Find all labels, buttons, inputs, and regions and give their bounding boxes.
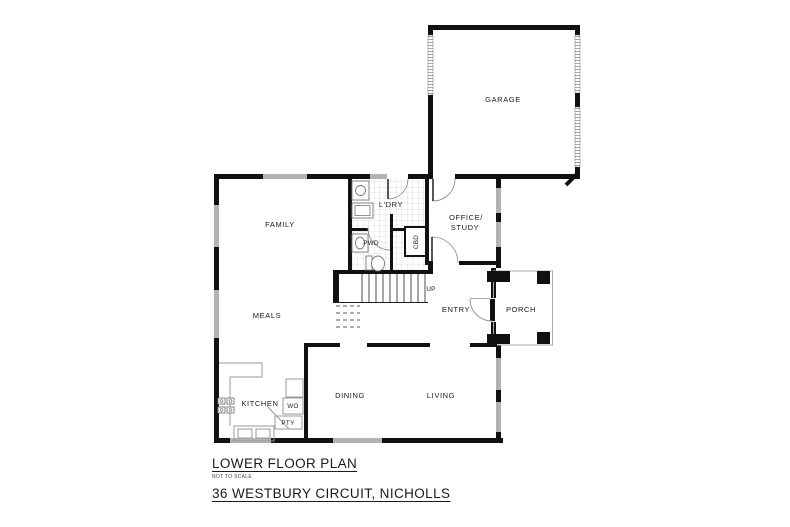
address-title: 36 WESTBURY CIRCUIT, NICHOLLS bbox=[212, 486, 450, 501]
garage-right-hatched-wall-lower bbox=[575, 107, 580, 167]
porch-post-top-right bbox=[537, 271, 550, 284]
garage-top-wall bbox=[428, 25, 580, 30]
kitchen-label: KITCHEN bbox=[241, 399, 278, 408]
office-right-wall-segment bbox=[496, 179, 501, 188]
laundry-powder-block bbox=[333, 179, 432, 274]
family-top-window bbox=[263, 174, 307, 179]
family-label: FAMILY bbox=[265, 220, 295, 229]
garage-left-wall-top bbox=[428, 25, 433, 35]
interior-walls-south bbox=[304, 343, 497, 443]
kitchen-sink-bowl-right bbox=[256, 429, 270, 438]
front-door-arc bbox=[470, 299, 492, 321]
laundry-label: L'DRY bbox=[379, 200, 403, 209]
entry-label: ENTRY bbox=[442, 305, 470, 314]
wall-oven-label: WO bbox=[287, 403, 298, 410]
front-door-leaf bbox=[490, 299, 495, 321]
garage-right-wall-mid bbox=[575, 93, 580, 107]
dining-bottom-window bbox=[333, 438, 382, 443]
living-right-wall-segment bbox=[496, 432, 501, 443]
powder-right-wall bbox=[390, 231, 393, 273]
entry-living-wall bbox=[470, 343, 497, 347]
garage-right-wall-top bbox=[575, 25, 580, 35]
meals-dining-wall-mid bbox=[367, 343, 430, 347]
laundry-trough bbox=[352, 181, 369, 200]
office-bottom-wall-right bbox=[459, 261, 497, 265]
family-laundry-wall bbox=[348, 179, 352, 273]
garage-room bbox=[428, 25, 580, 185]
top-wall-segment bbox=[307, 174, 370, 179]
dining-label: DINING bbox=[335, 391, 365, 400]
bottom-wall-segment bbox=[382, 438, 503, 443]
garage-label: GARAGE bbox=[485, 95, 521, 104]
powder-label: PWD bbox=[363, 240, 379, 247]
garage-internal-door-arc bbox=[433, 179, 455, 201]
family-left-window bbox=[214, 205, 219, 247]
top-wall-segment bbox=[408, 174, 433, 179]
office-door-arc bbox=[432, 237, 458, 263]
meals-label: MEALS bbox=[253, 311, 281, 320]
garage-left-hatched-wall bbox=[428, 35, 433, 95]
living-label: LIVING bbox=[427, 391, 455, 400]
pantry-label: PTY bbox=[281, 420, 295, 427]
stairs-dashed-lower-flight bbox=[336, 306, 360, 327]
scale-note: NOT TO SCALE bbox=[212, 474, 252, 480]
meals-dining-wall-left bbox=[305, 343, 340, 347]
garage-right-hatched-wall-upper bbox=[575, 35, 580, 93]
top-wall-segment bbox=[214, 174, 263, 179]
toilet-bowl bbox=[372, 256, 385, 271]
office-room bbox=[428, 179, 497, 265]
laundry-top-window bbox=[370, 174, 387, 179]
powder-stairs-wall bbox=[333, 270, 432, 274]
porch-post-top-left bbox=[487, 271, 510, 282]
entry-stair-wall bbox=[428, 261, 433, 274]
living-right-window-upper bbox=[496, 358, 501, 390]
office-right-wall-segment bbox=[496, 213, 501, 222]
left-wall-segment bbox=[214, 338, 219, 443]
porch-label: PORCH bbox=[506, 305, 536, 314]
kitchen-dining-wall bbox=[304, 343, 308, 443]
floor-plan-drawing: GARAGE FAMILY MEALS L'DRY PWD CBD OFFICE… bbox=[0, 0, 790, 527]
stairs-up-label: UP bbox=[426, 286, 435, 293]
office-label-line2: STUDY bbox=[451, 223, 479, 232]
kitchen-sink-bowl-left bbox=[238, 429, 252, 438]
cupboard-label: CBD bbox=[413, 235, 420, 249]
stairs-left-wall bbox=[333, 270, 339, 302]
office-right-window-lower bbox=[496, 222, 501, 247]
floor-plan-page: GARAGE FAMILY MEALS L'DRY PWD CBD OFFICE… bbox=[0, 0, 790, 527]
porch-post-bottom-left bbox=[487, 334, 510, 344]
plan-title: LOWER FLOOR PLAN bbox=[212, 456, 357, 471]
garage-left-wall-bottom bbox=[428, 95, 433, 179]
power-point-symbols bbox=[218, 398, 234, 413]
bottom-wall-segment bbox=[214, 438, 230, 443]
living-right-wall-segment bbox=[496, 390, 501, 402]
meals-left-window bbox=[214, 290, 219, 338]
office-label-line1: OFFICE/ bbox=[449, 213, 483, 222]
left-wall-segment bbox=[214, 174, 219, 205]
kitchen-bench-outline bbox=[219, 363, 262, 426]
bottom-wall-segment bbox=[271, 438, 333, 443]
office-right-window-upper bbox=[496, 188, 501, 213]
laundry-powder-wall-left bbox=[348, 228, 368, 231]
living-right-window-lower bbox=[496, 402, 501, 432]
porch-post-bottom-right bbox=[537, 332, 550, 344]
kitchen-cabinet bbox=[286, 379, 303, 397]
top-wall-segment bbox=[455, 174, 580, 179]
laundry-hall-wall-stub bbox=[390, 214, 393, 230]
left-wall-segment bbox=[214, 247, 219, 290]
